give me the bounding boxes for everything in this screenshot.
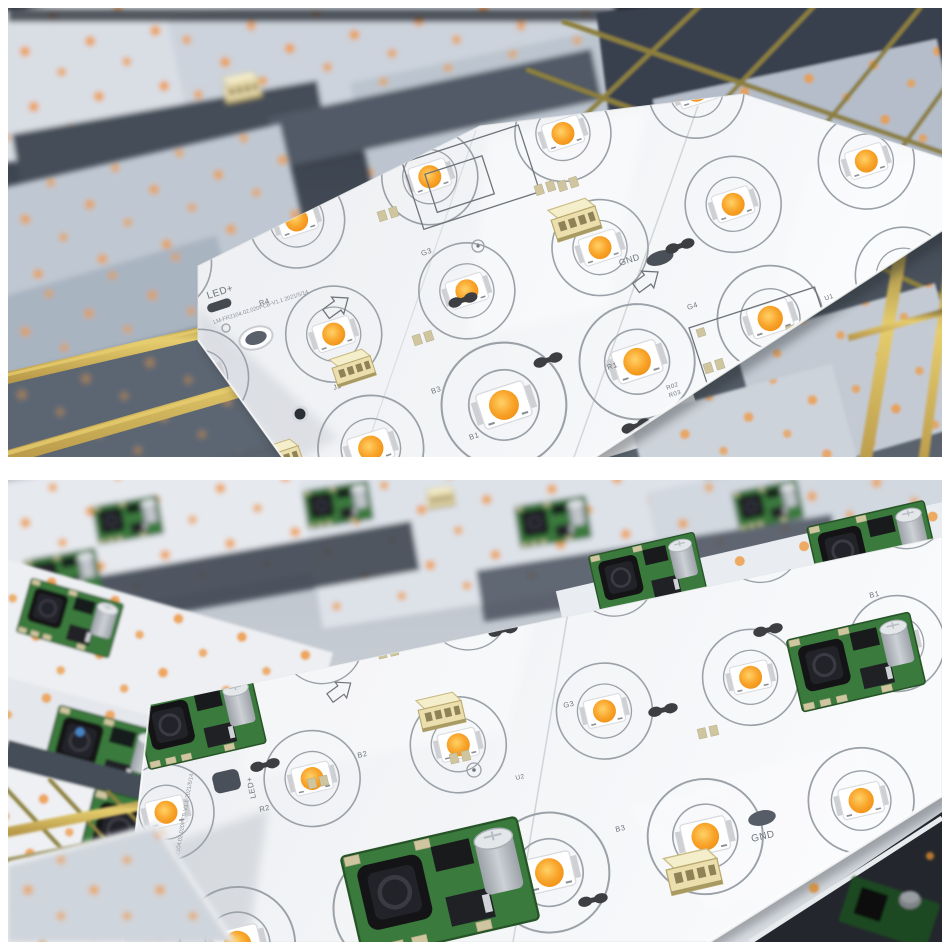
collage-divider (8, 457, 942, 480)
photo-collage: LED+ LM-FR2104.02.020PCB-V1.1 2021/5/14 (0, 0, 950, 950)
photo-bottom-assembled-panels: GND LED+ LM-FR2104.02.020PCB-V1.1 2021/5… (8, 480, 942, 942)
blue-test-dot (76, 728, 85, 737)
round-hole (293, 407, 307, 421)
photo-top-bare-led-panels: LED+ LM-FR2104.02.020PCB-V1.1 2021/5/14 (8, 8, 942, 457)
